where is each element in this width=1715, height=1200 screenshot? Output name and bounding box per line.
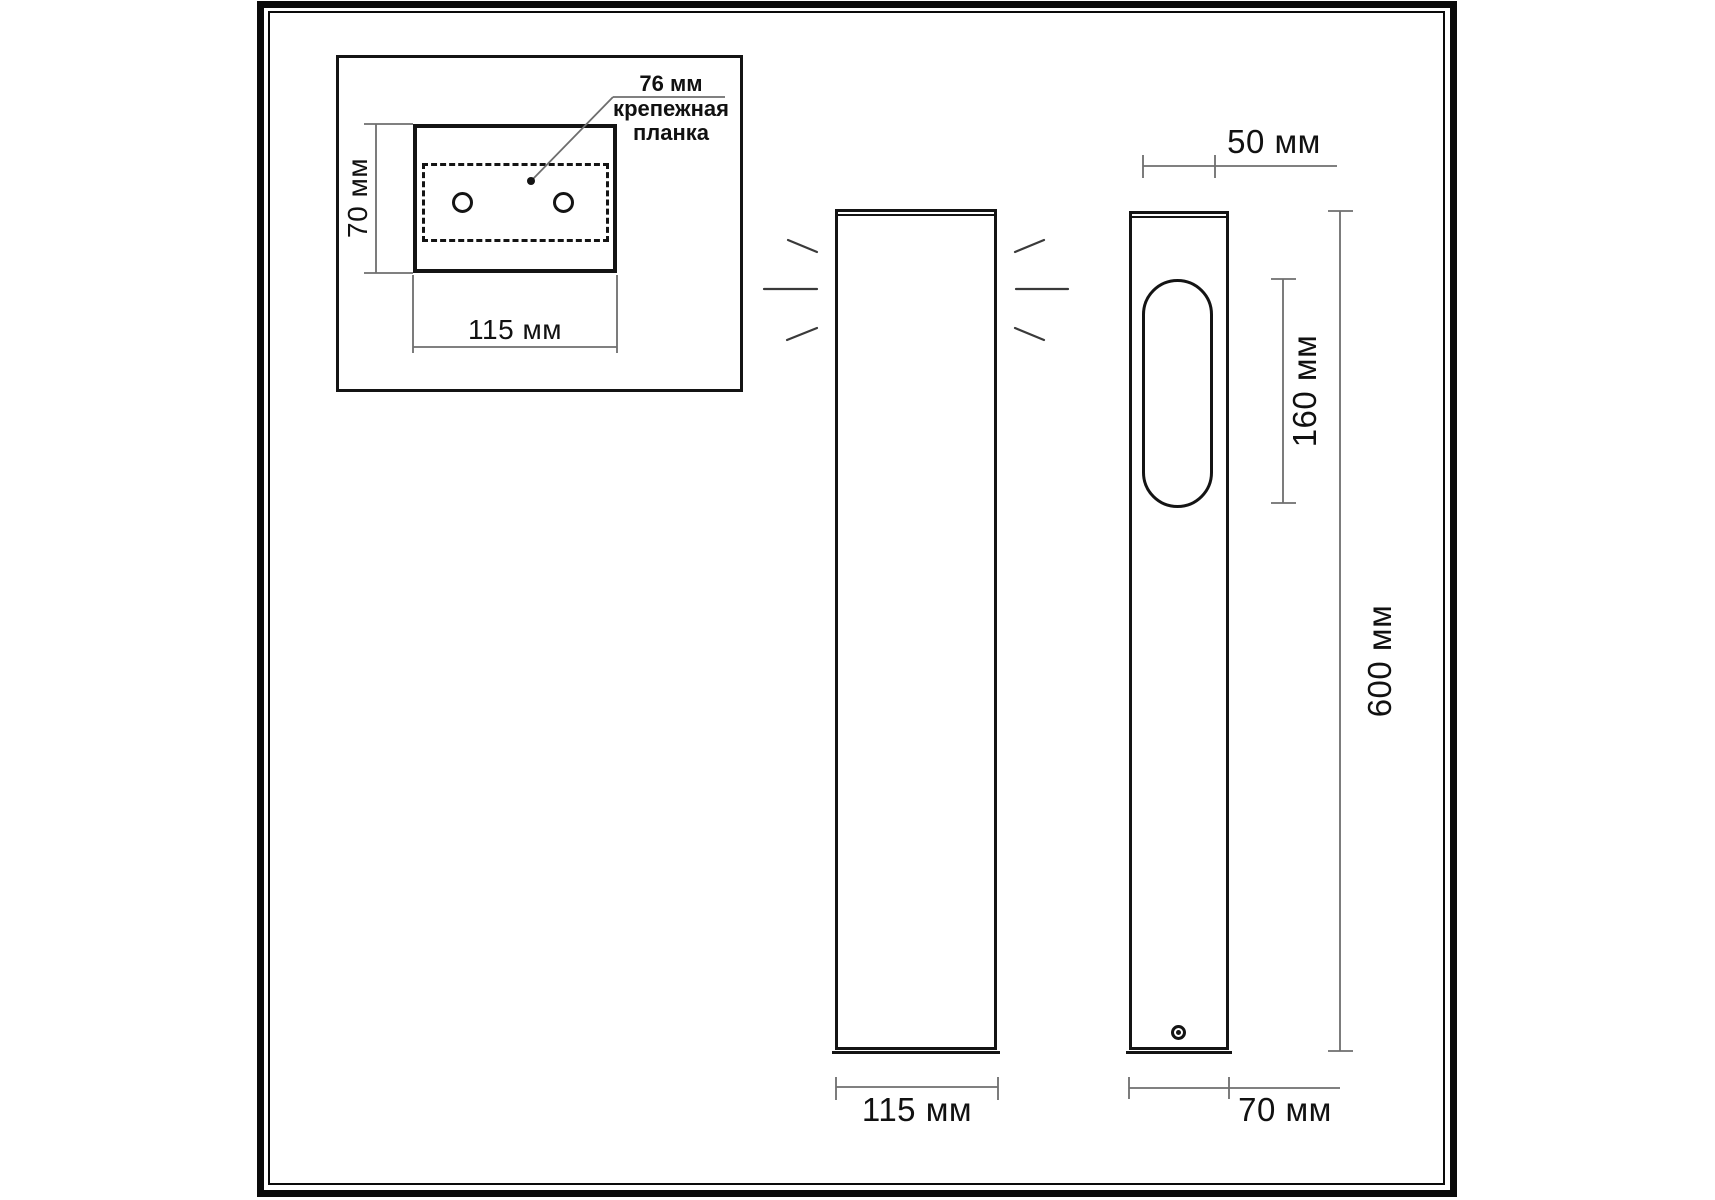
inset-height-label: 70 мм bbox=[342, 158, 374, 238]
side-view-base-line bbox=[1126, 1051, 1232, 1054]
mounting-hole-left bbox=[452, 192, 473, 213]
front-view-base-line bbox=[832, 1051, 1000, 1054]
inset-width-label: 115 мм bbox=[468, 314, 562, 346]
side-view-top-cap-line bbox=[1129, 216, 1229, 218]
lens-cutout bbox=[1142, 279, 1213, 508]
total-height-label: 600 мм bbox=[1361, 605, 1399, 718]
front-view-top-cap-line bbox=[835, 214, 997, 216]
technical-drawing-canvas: 76 мм крепежная планка 70 мм 115 мм 115 … bbox=[0, 0, 1715, 1200]
lens-width-label: 50 мм bbox=[1227, 123, 1321, 161]
lens-height-label: 160 мм bbox=[1286, 335, 1324, 448]
front-width-label: 115 мм bbox=[862, 1091, 972, 1129]
mounting-hole-right bbox=[553, 192, 574, 213]
plate-width-label: 76 мм bbox=[639, 71, 702, 97]
mounting-plate-dashed-outline bbox=[422, 163, 609, 242]
screw-center-dot bbox=[1176, 1030, 1181, 1035]
front-view-body bbox=[835, 209, 997, 1050]
side-depth-label: 70 мм bbox=[1238, 1091, 1332, 1129]
plate-note-label: крепежная планка bbox=[613, 97, 729, 145]
